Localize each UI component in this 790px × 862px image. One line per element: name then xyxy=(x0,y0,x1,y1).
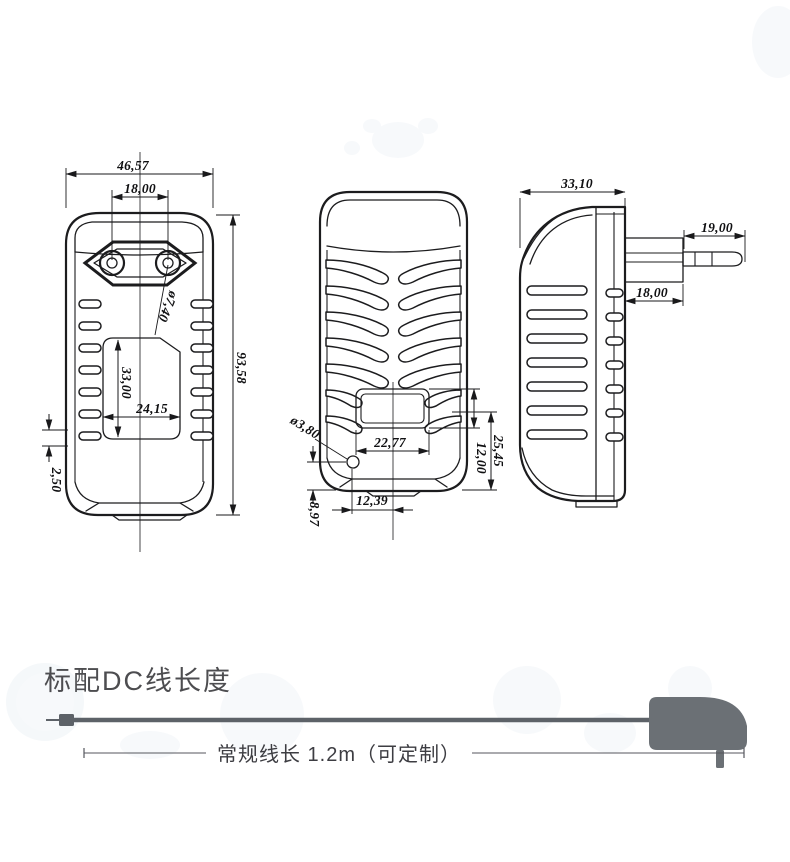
adapter-dimension-sheet: 46,57 18,00 ø7,40 93,58 33,00 24,15 xyxy=(0,0,790,862)
dim-back-label-height: 12,00 xyxy=(474,442,489,474)
cord-exit-hole xyxy=(347,456,359,468)
dim-side-pin-length: 19,00 xyxy=(701,220,733,235)
dim-back-label-area-to-bottom: 25,45 xyxy=(491,434,506,467)
back-label-recess xyxy=(356,389,429,428)
front-side-ribs xyxy=(79,300,213,440)
dim-front-width: 46,57 xyxy=(116,158,150,173)
front-view-geometry xyxy=(66,152,213,552)
dim-front-height: 93,58 xyxy=(234,352,249,384)
dc-connector xyxy=(59,714,74,726)
cable-length-label: 常规线长 1.2m（可定制） xyxy=(217,743,461,766)
back-view: 22,77 ø3,80 12,39 8,97 12,00 2 xyxy=(287,192,506,540)
dim-front-rib-pitch: 2,50 xyxy=(49,467,64,493)
dim-front-pin-spacing: 18,00 xyxy=(124,181,156,196)
dim-back-hole-offset-x: 12,39 xyxy=(356,493,388,508)
front-view-dimensions: 46,57 18,00 ø7,40 93,58 33,00 24,15 xyxy=(42,158,249,515)
dim-side-plug-base: 18,00 xyxy=(636,285,668,300)
side-view: 33,10 19,00 18,00 xyxy=(520,176,745,507)
cable-section: 标配DC线长度 常规线长 1.2m（可定制） xyxy=(44,666,747,768)
back-vents-right xyxy=(399,260,461,434)
dim-back-hole-diameter: ø3,80 xyxy=(287,412,323,442)
technical-drawing-canvas: 46,57 18,00 ø7,40 93,58 33,00 24,15 xyxy=(0,0,790,862)
side-ribs xyxy=(527,286,623,441)
front-label-recess xyxy=(103,338,180,439)
dim-back-hole-offset-y: 8,97 xyxy=(307,502,322,528)
back-vents-left xyxy=(326,260,388,434)
cable-section-heading: 标配DC线长度 xyxy=(44,666,232,696)
front-view: 46,57 18,00 ø7,40 93,58 33,00 24,15 xyxy=(42,152,249,552)
europlug-profile xyxy=(625,238,742,282)
dim-front-label-width: 24,15 xyxy=(135,401,168,416)
side-view-geometry xyxy=(520,207,742,507)
dim-side-depth: 33,10 xyxy=(560,176,593,191)
back-view-geometry xyxy=(320,192,467,540)
dim-back-label-width: 22,77 xyxy=(373,435,407,450)
dim-front-label-height: 33,00 xyxy=(119,366,134,399)
dim-front-pin-diameter: ø7,40 xyxy=(155,288,181,324)
adapter-silhouette xyxy=(649,697,747,750)
